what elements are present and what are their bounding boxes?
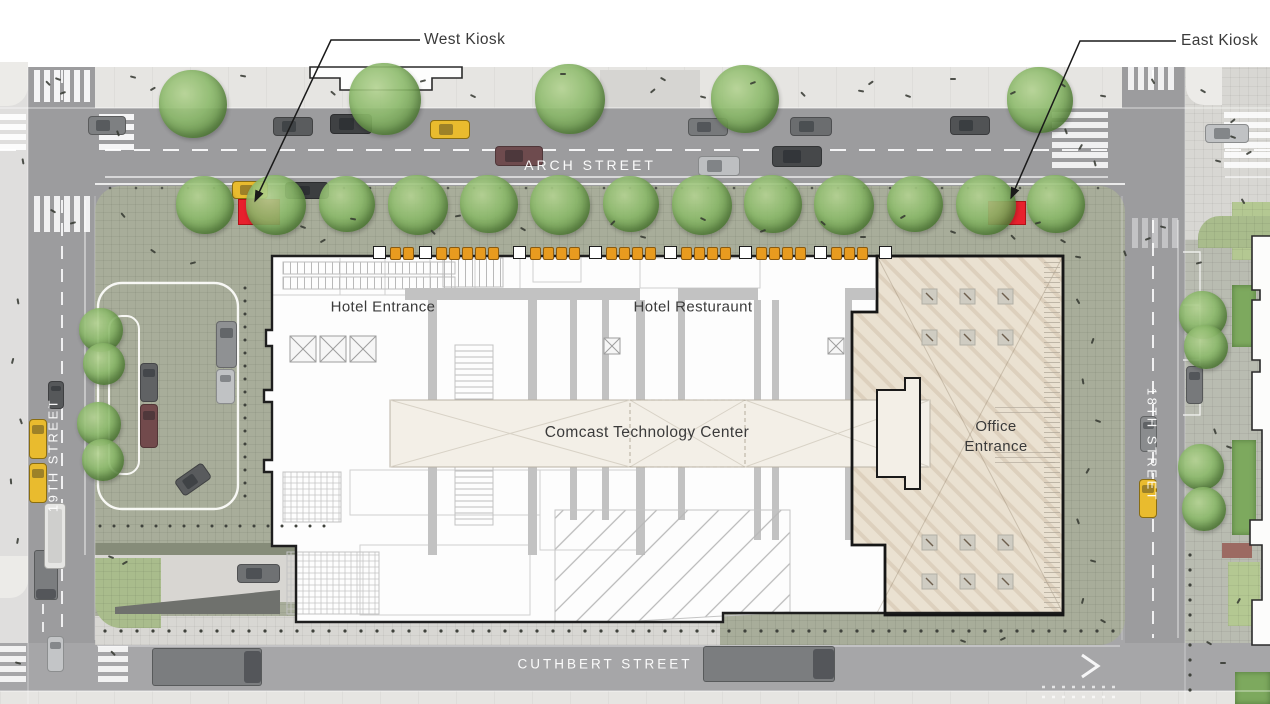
hotel-entrance-label: Hotel Entrance [331,299,436,316]
18th-street-label: 18TH STREET [1145,388,1160,502]
east-kiosk-label: East Kiosk [1181,32,1258,50]
annotation-lines [0,0,1270,704]
west-kiosk-leader-line [255,40,420,201]
site-plan: West Kiosk East Kiosk ARCH STREET CUTHBE… [0,0,1270,704]
office-entrance-line2: Entrance [964,437,1027,457]
office-entrance-label: Office Entrance [964,417,1027,457]
west-kiosk-label: West Kiosk [424,31,505,49]
hotel-restaurant-label: Hotel Resturaunt [634,299,753,316]
arch-street-label: ARCH STREET [524,157,656,173]
office-entrance-line1: Office [964,417,1027,437]
cuthbert-street-label: CUTHBERT STREET [517,657,692,672]
east-kiosk-leader-line [1011,41,1176,198]
building-name-label: Comcast Technology Center [545,424,749,442]
19th-street-label: 19TH STREET [46,398,61,512]
